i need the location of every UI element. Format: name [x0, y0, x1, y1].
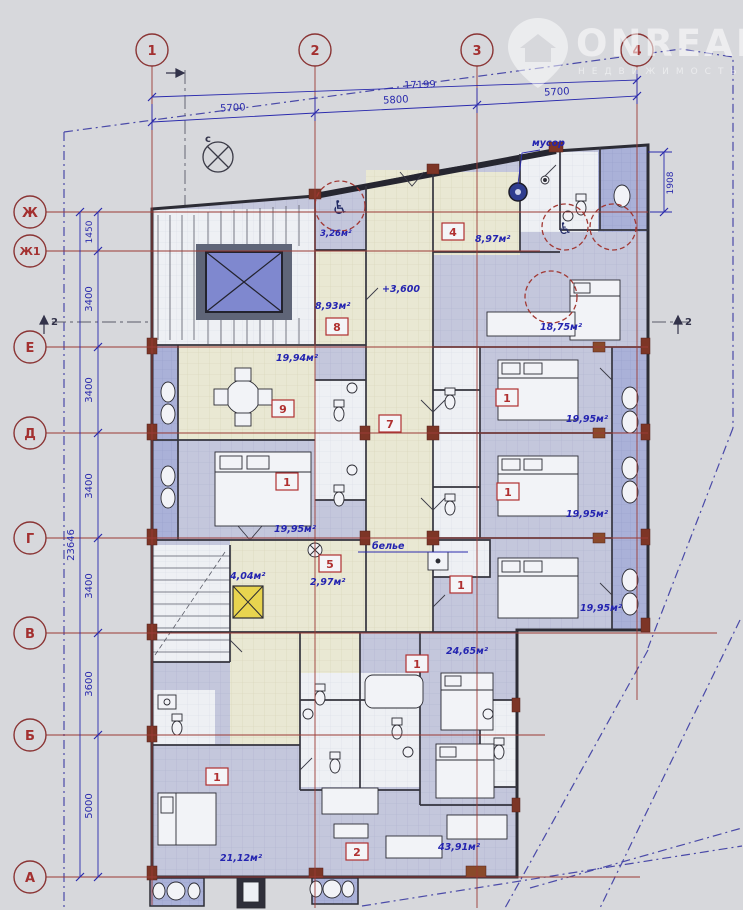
bed — [436, 744, 494, 798]
floorplan-page: ♿ ♿ 1 2 3 4 Ж Ж1 Е Д Г В Б А — [0, 0, 743, 910]
linen-label: белье — [372, 541, 405, 552]
svg-text:1: 1 — [283, 476, 291, 489]
axis-label: 1 — [147, 44, 156, 59]
dim-left-5: 3400 — [84, 573, 95, 598]
garbage-label: мусор — [532, 138, 565, 149]
svg-text:4: 4 — [449, 226, 457, 239]
svg-text:1: 1 — [457, 579, 465, 592]
svg-text:8: 8 — [333, 321, 341, 334]
dim-right-1: 1908 — [666, 171, 676, 194]
dim-top-2: 5800 — [383, 94, 409, 106]
dim-top-total: 17199 — [404, 79, 436, 91]
area-label: 43,91м² — [437, 842, 481, 853]
svg-text:2: 2 — [353, 846, 361, 859]
brand-subtitle: НЕДВИЖИМОСТЬ — [578, 67, 743, 77]
area-label: 2,97м² — [310, 577, 346, 588]
brand-pin-icon — [508, 18, 568, 88]
north-symbol — [203, 142, 233, 172]
bathtub — [365, 675, 423, 708]
area-label: 19,95м² — [566, 509, 609, 520]
area-label: 19,95м² — [566, 414, 609, 425]
dim-left-1: 1450 — [85, 220, 95, 243]
floorplan-drawing: ♿ ♿ 1 2 3 4 Ж Ж1 Е Д Г В Б А — [0, 0, 743, 910]
axis-label: В — [25, 627, 35, 642]
axis-label: А — [25, 871, 35, 886]
svg-text:♿: ♿ — [558, 219, 572, 238]
area-label: 19,94м² — [276, 353, 319, 364]
elevation-label: +3,600 — [382, 284, 420, 295]
room-tag: 1 — [450, 576, 472, 593]
elevator — [196, 244, 292, 320]
axis-label: Е — [26, 341, 35, 356]
room-tag: 2 — [346, 843, 368, 860]
svg-text:7: 7 — [386, 418, 394, 431]
sofa — [322, 788, 378, 814]
bed — [441, 673, 493, 730]
section-marker-left — [40, 316, 48, 334]
svg-text:1: 1 — [503, 392, 511, 405]
room-tag: 1 — [496, 389, 518, 406]
table — [334, 824, 368, 838]
dim-left-3: 3400 — [84, 377, 95, 402]
room-tag: 7 — [379, 415, 401, 432]
dim-top-3: 5700 — [544, 86, 570, 98]
axis-label: Г — [26, 532, 34, 547]
coffee-table — [386, 836, 442, 858]
room-tag: 9 — [272, 400, 294, 417]
area-label: 3,26м² — [320, 229, 352, 239]
watermark: ONREALT НЕДВИЖИМОСТЬ — [508, 18, 743, 88]
room-tag: 8 — [326, 318, 348, 335]
bed — [498, 558, 578, 618]
svg-text:5: 5 — [326, 558, 334, 571]
axis-label: Ж1 — [19, 245, 40, 258]
dim-left-6: 3600 — [84, 671, 95, 696]
area-label: 21,12м² — [220, 853, 263, 864]
section-marker-top — [166, 69, 184, 77]
axis-label: Б — [25, 729, 35, 744]
svg-text:9: 9 — [279, 403, 287, 416]
area-label: 8,97м² — [475, 234, 511, 245]
brand-name: ONREALT — [576, 22, 743, 65]
room-tag: 1 — [276, 473, 298, 490]
dim-left-total: 23646 — [66, 529, 77, 561]
area-label: 4,04м² — [229, 571, 266, 582]
bed — [158, 793, 216, 845]
room-tag: 5 — [319, 555, 341, 572]
area-label: 8,93м² — [315, 301, 351, 312]
room-tag: 4 — [442, 223, 464, 240]
axis-label: Ж — [22, 206, 38, 221]
dim-left-4: 3400 — [84, 473, 95, 498]
svg-text:1: 1 — [413, 658, 421, 671]
shaft-yellow — [233, 586, 263, 618]
area-label: 18,75м² — [540, 322, 583, 333]
axis-label: 2 — [310, 44, 319, 59]
svg-text:1: 1 — [504, 486, 512, 499]
dim-left-7: 5000 — [84, 793, 95, 818]
axis-label: Д — [24, 427, 36, 442]
svg-text:1: 1 — [213, 771, 221, 784]
area-label: 19,95м² — [580, 603, 623, 614]
axis-label: 3 — [472, 44, 481, 59]
dim-top-1: 5700 — [220, 102, 246, 114]
svg-text:♿: ♿ — [331, 197, 348, 219]
section-label-left: 2 — [51, 317, 58, 328]
area-label: 19,95м² — [274, 524, 317, 535]
room-tag: 1 — [206, 768, 228, 785]
room-tag: 1 — [497, 483, 519, 500]
garbage-chute — [509, 183, 527, 201]
dim-left-2: 3400 — [84, 286, 95, 311]
area-label: 24,65м² — [446, 646, 489, 657]
room-tag: 1 — [406, 655, 428, 672]
entry-step — [237, 876, 265, 908]
north-label: с — [205, 134, 211, 145]
section-label-right: 2 — [685, 317, 692, 328]
section-marker-right — [674, 316, 682, 334]
